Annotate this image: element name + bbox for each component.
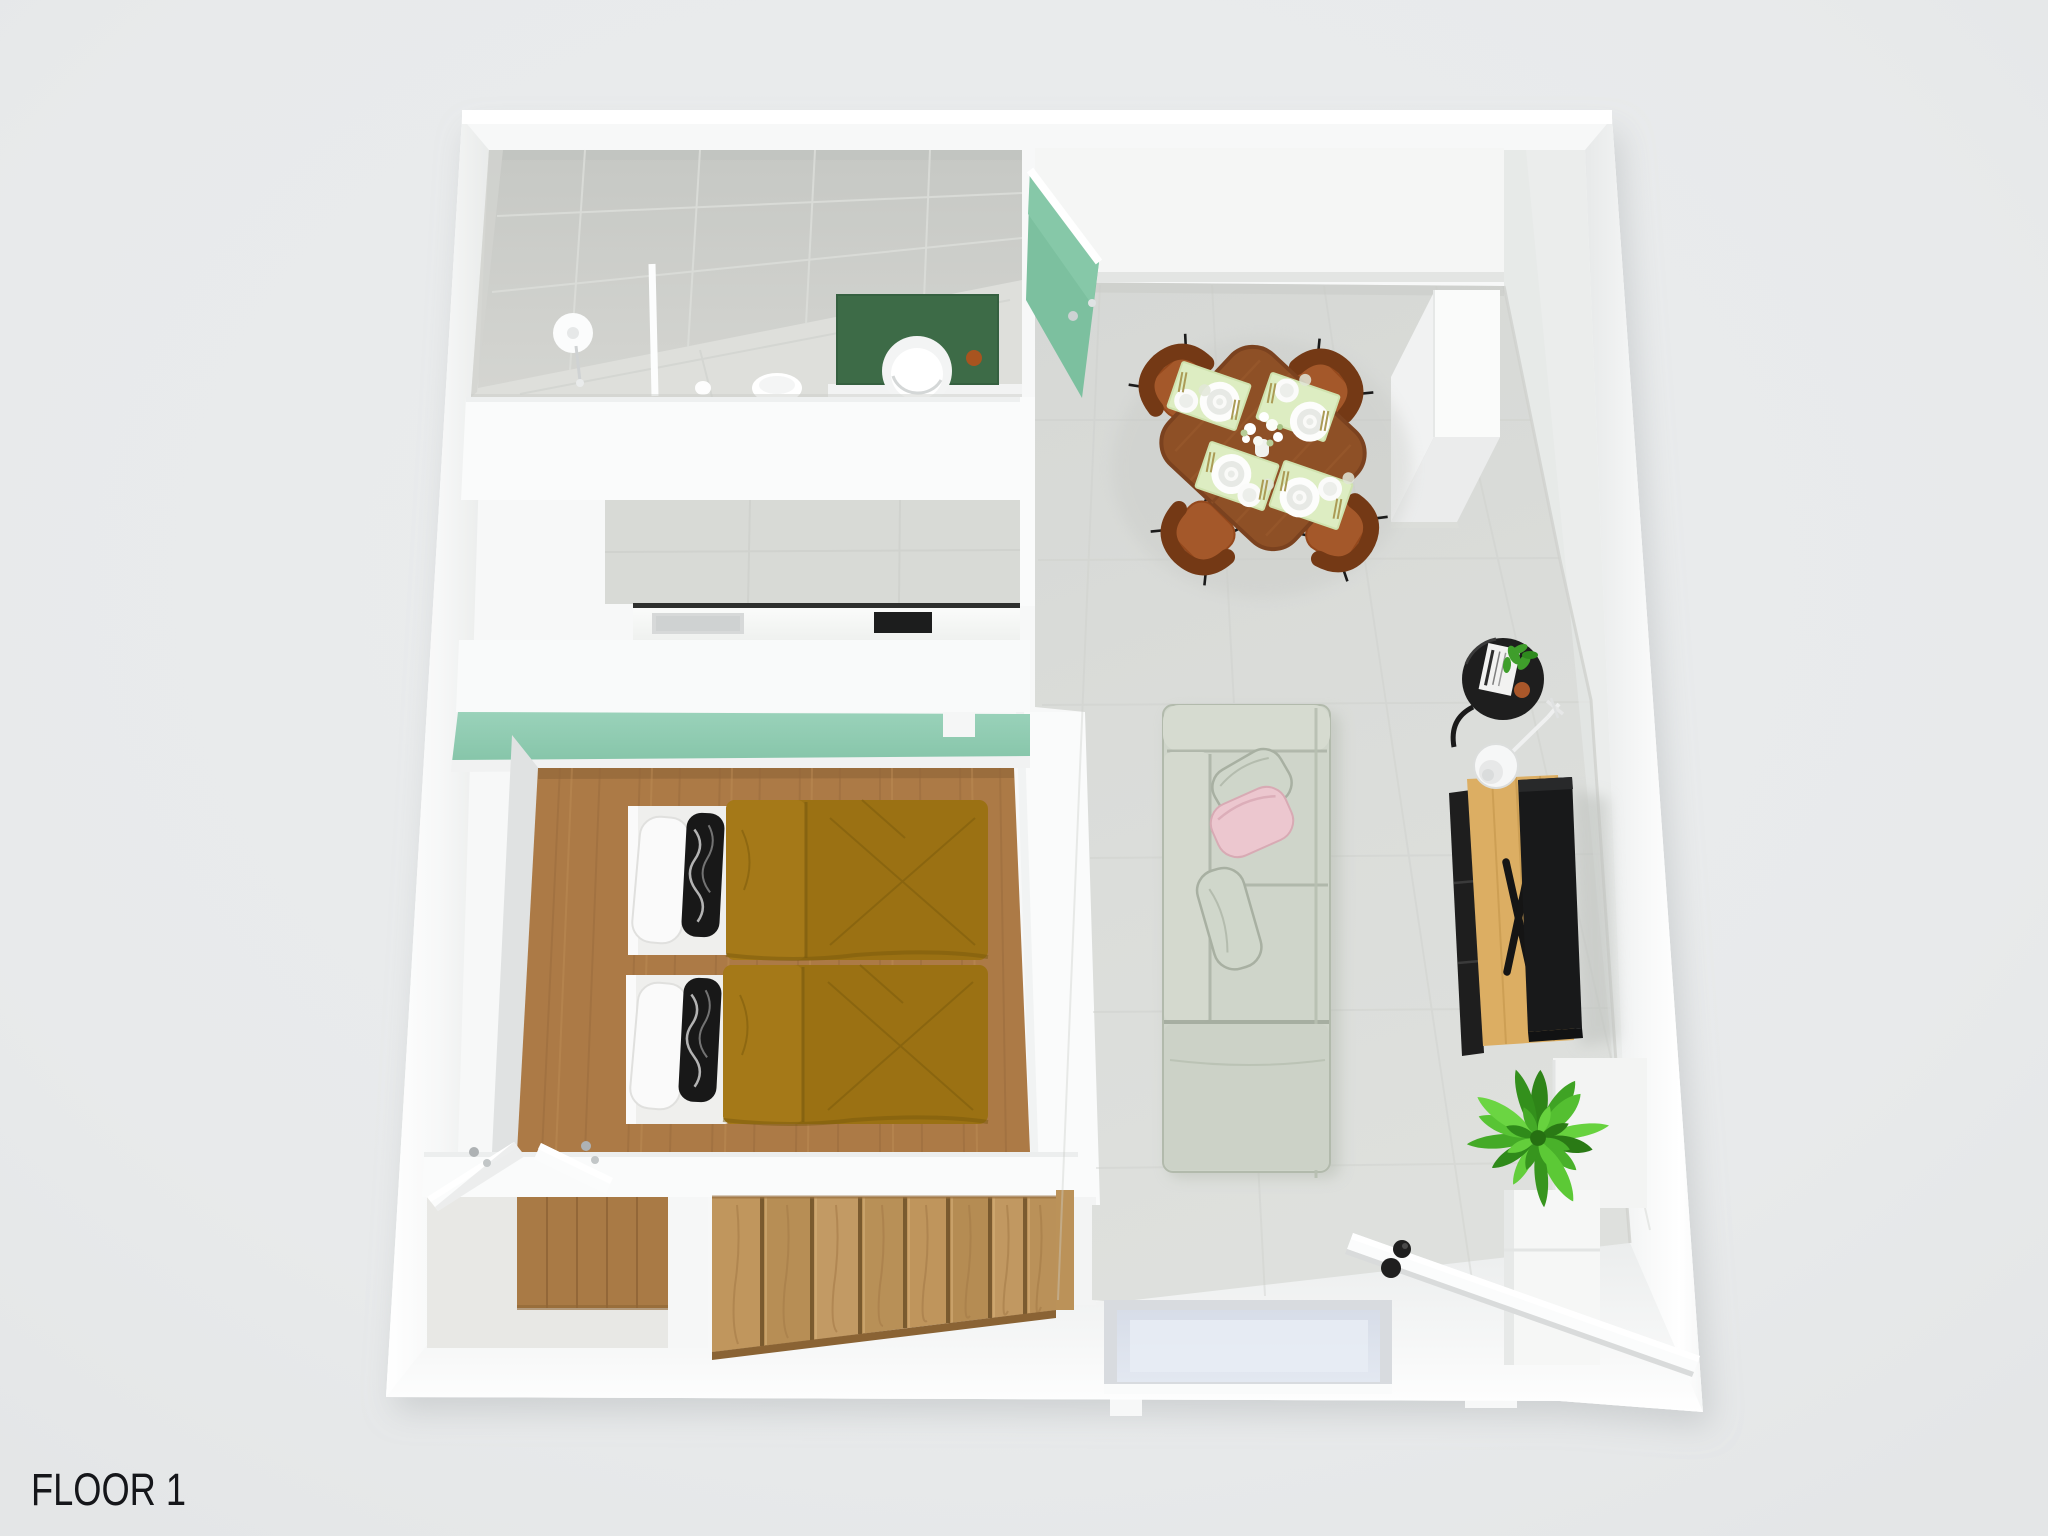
svg-text:FLOOR 1: FLOOR 1 bbox=[31, 1464, 186, 1515]
